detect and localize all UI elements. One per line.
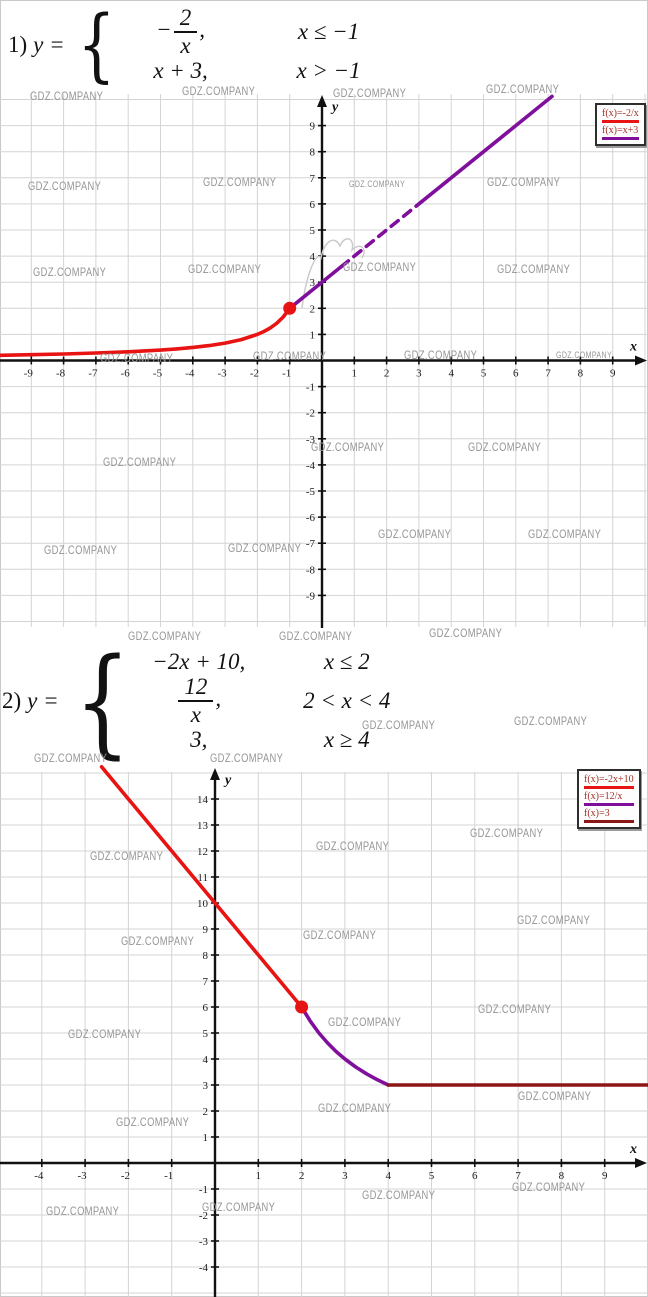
legend-entry: f(x)=3 bbox=[584, 808, 634, 823]
svg-text:8: 8 bbox=[578, 368, 584, 380]
condition-text: 2 < x < 4 bbox=[303, 688, 390, 713]
piecewise-rows: −2x,x ≤ −1x + 3,x > −1 bbox=[122, 6, 404, 84]
svg-text:-1: -1 bbox=[282, 368, 291, 380]
svg-text:3: 3 bbox=[416, 368, 422, 380]
svg-text:1: 1 bbox=[256, 1170, 262, 1182]
svg-text:9: 9 bbox=[310, 121, 316, 133]
svg-text:8: 8 bbox=[310, 147, 316, 159]
svg-text:-2: -2 bbox=[121, 1170, 130, 1182]
piecewise-row: x + 3,x > −1 bbox=[122, 58, 404, 84]
svg-text:-5: -5 bbox=[306, 486, 316, 498]
legend-entry: f(x)=-2/x bbox=[602, 108, 639, 123]
svg-text:2: 2 bbox=[384, 368, 390, 380]
legend-color-bar bbox=[584, 803, 634, 806]
fraction-numerator: 2 bbox=[174, 6, 198, 32]
piecewise-brace: { bbox=[77, 11, 115, 79]
svg-text:-3: -3 bbox=[306, 434, 316, 446]
piecewise-condition: x ≤ 2 bbox=[272, 649, 422, 675]
legend-entry: f(x)=x+3 bbox=[602, 125, 639, 140]
svg-text:5: 5 bbox=[203, 1028, 209, 1040]
svg-text:9: 9 bbox=[610, 368, 616, 380]
curve-f-x-x-3 bbox=[341, 201, 422, 266]
x-axis-arrow bbox=[635, 1158, 647, 1168]
expression-text: −2x + 10, bbox=[152, 649, 245, 674]
fraction: 2x bbox=[174, 6, 198, 58]
svg-text:4: 4 bbox=[203, 1054, 209, 1066]
curve-f-x-2-x bbox=[0, 308, 290, 355]
piecewise-expression: −2x, bbox=[122, 6, 240, 58]
legend-entry: f(x)=12/x bbox=[584, 791, 634, 806]
svg-text:9: 9 bbox=[203, 924, 209, 936]
graph-1-svg: xy-9-8-7-6-5-4-3-2-1123456789-9-8-7-6-5-… bbox=[0, 88, 648, 628]
svg-text:4: 4 bbox=[385, 1170, 391, 1182]
svg-text:2: 2 bbox=[299, 1170, 305, 1182]
piecewise-row: 12x,2 < x < 4 bbox=[140, 675, 422, 727]
svg-text:1: 1 bbox=[203, 1132, 209, 1144]
svg-text:-1: -1 bbox=[199, 1184, 208, 1196]
svg-text:5: 5 bbox=[481, 368, 487, 380]
svg-text:9: 9 bbox=[602, 1170, 608, 1182]
fraction-denominator: x bbox=[180, 33, 190, 58]
solution-page: 1)y ={−2x,x ≤ −1x + 3,x > −1 xy-9-8-7-6-… bbox=[0, 0, 648, 1297]
svg-text:-7: -7 bbox=[306, 538, 316, 550]
svg-text:6: 6 bbox=[472, 1170, 478, 1182]
expression-text: x + 3, bbox=[153, 58, 207, 83]
comma: , bbox=[199, 17, 205, 42]
svg-text:-3: -3 bbox=[78, 1170, 88, 1182]
graph-2-svg: xy-4-3-2-1123456789-4-3-2-11234567891011… bbox=[0, 763, 648, 1297]
svg-text:-4: -4 bbox=[306, 460, 316, 472]
problem-number: 1) bbox=[8, 32, 27, 58]
svg-text:-2: -2 bbox=[250, 368, 259, 380]
grid-lines bbox=[0, 772, 648, 1297]
svg-text:7: 7 bbox=[203, 976, 209, 988]
svg-text:-6: -6 bbox=[306, 512, 316, 524]
svg-text:-2: -2 bbox=[306, 408, 315, 420]
svg-text:-5: -5 bbox=[153, 368, 163, 380]
svg-text:-1: -1 bbox=[306, 382, 315, 394]
piecewise-expression: x + 3, bbox=[122, 58, 240, 84]
problem-number: 2) bbox=[2, 688, 21, 714]
piecewise-brace: { bbox=[74, 651, 130, 751]
fraction-denominator: x bbox=[191, 702, 201, 727]
legend-color-bar bbox=[602, 137, 639, 140]
legend-color-bar bbox=[584, 820, 634, 823]
minus-sign: − bbox=[156, 17, 172, 42]
svg-text:5: 5 bbox=[429, 1170, 435, 1182]
legend-color-bar bbox=[602, 120, 639, 123]
fraction: 12x bbox=[178, 675, 213, 727]
svg-text:10: 10 bbox=[197, 898, 209, 910]
condition-text: x ≤ 2 bbox=[324, 649, 370, 674]
endpoint-dot bbox=[283, 302, 296, 315]
watermark: GDZ.COMPANY bbox=[514, 714, 587, 728]
problem-lhs: y = bbox=[27, 688, 58, 714]
watermark: GDZ.COMPANY bbox=[429, 626, 502, 640]
svg-text:1: 1 bbox=[310, 329, 316, 341]
svg-text:2: 2 bbox=[310, 303, 316, 315]
y-axis-label: y bbox=[223, 773, 232, 788]
legend-entry: f(x)=-2x+10 bbox=[584, 774, 634, 789]
legend-entry-label: f(x)=3 bbox=[584, 808, 634, 819]
svg-text:-4: -4 bbox=[185, 368, 195, 380]
piecewise-rows: −2x + 10,x ≤ 212x,2 < x < 43,x ≥ 4 bbox=[140, 649, 422, 753]
svg-text:13: 13 bbox=[197, 820, 209, 832]
legend-box-2: f(x)=-2x+10f(x)=12/xf(x)=3 bbox=[577, 769, 641, 829]
legend-box-1: f(x)=-2/xf(x)=x+3 bbox=[595, 103, 646, 146]
piecewise-expression: 12x, bbox=[140, 675, 258, 727]
svg-text:5: 5 bbox=[310, 225, 316, 237]
piecewise-expression: 3, bbox=[140, 727, 258, 753]
piecewise-condition: x ≥ 4 bbox=[272, 727, 422, 753]
legend-entry-label: f(x)=-2x+10 bbox=[584, 774, 634, 785]
y-axis-arrow bbox=[210, 768, 220, 780]
piecewise-row: 3,x ≥ 4 bbox=[140, 727, 422, 753]
legend-entry-label: f(x)=-2/x bbox=[602, 108, 639, 119]
condition-text: x ≥ 4 bbox=[324, 727, 370, 752]
problem-2-formula: 2)y ={−2x + 10,x ≤ 212x,2 < x < 43,x ≥ 4 bbox=[2, 640, 422, 762]
piecewise-condition: 2 < x < 4 bbox=[272, 688, 422, 714]
svg-text:14: 14 bbox=[197, 794, 209, 806]
svg-text:-8: -8 bbox=[56, 368, 66, 380]
axes bbox=[0, 777, 639, 1297]
svg-text:3: 3 bbox=[342, 1170, 348, 1182]
svg-text:4: 4 bbox=[448, 368, 454, 380]
svg-text:-4: -4 bbox=[199, 1262, 209, 1274]
fraction-numerator: 12 bbox=[178, 675, 213, 701]
piecewise-row: −2x + 10,x ≤ 2 bbox=[140, 649, 422, 675]
legend-entry-label: f(x)=12/x bbox=[584, 791, 634, 802]
piecewise-row: −2x,x ≤ −1 bbox=[122, 6, 404, 58]
svg-text:-9: -9 bbox=[24, 368, 34, 380]
svg-text:-2: -2 bbox=[199, 1210, 208, 1222]
svg-text:8: 8 bbox=[559, 1170, 565, 1182]
x-axis-label: x bbox=[629, 340, 637, 355]
piecewise-condition: x > −1 bbox=[254, 58, 404, 84]
svg-text:-3: -3 bbox=[218, 368, 228, 380]
comma: , bbox=[215, 686, 221, 711]
expression-text: 3, bbox=[190, 727, 207, 752]
svg-text:-7: -7 bbox=[88, 368, 98, 380]
svg-text:7: 7 bbox=[515, 1170, 521, 1182]
svg-text:-6: -6 bbox=[121, 368, 131, 380]
svg-text:2: 2 bbox=[203, 1106, 209, 1118]
condition-text: x ≤ −1 bbox=[298, 19, 359, 44]
svg-text:6: 6 bbox=[513, 368, 519, 380]
condition-text: x > −1 bbox=[296, 58, 360, 83]
curve-f-x-x-3 bbox=[422, 96, 552, 201]
y-axis-label: y bbox=[330, 100, 339, 115]
svg-text:7: 7 bbox=[545, 368, 551, 380]
problem-lhs: y = bbox=[33, 32, 64, 58]
svg-text:6: 6 bbox=[310, 199, 316, 211]
svg-text:-8: -8 bbox=[306, 564, 316, 576]
svg-text:-4: -4 bbox=[34, 1170, 44, 1182]
legend-color-bar bbox=[584, 786, 634, 789]
svg-text:7: 7 bbox=[310, 173, 316, 185]
curve-f-x-x-3 bbox=[290, 267, 342, 309]
piecewise-condition: x ≤ −1 bbox=[254, 19, 404, 45]
piecewise-expression: −2x + 10, bbox=[140, 649, 258, 675]
problem-1-formula: 1)y ={−2x,x ≤ −1x + 3,x > −1 bbox=[8, 2, 404, 88]
endpoint-dot bbox=[295, 1001, 308, 1014]
svg-text:-3: -3 bbox=[199, 1236, 209, 1248]
legend-entry-label: f(x)=x+3 bbox=[602, 125, 639, 136]
svg-text:6: 6 bbox=[203, 1002, 209, 1014]
y-axis-arrow bbox=[317, 95, 327, 107]
svg-text:1: 1 bbox=[352, 368, 358, 380]
svg-text:12: 12 bbox=[197, 846, 208, 858]
svg-text:-1: -1 bbox=[164, 1170, 173, 1182]
svg-text:3: 3 bbox=[203, 1080, 209, 1092]
svg-text:-9: -9 bbox=[306, 590, 316, 602]
x-axis-label: x bbox=[629, 1142, 637, 1157]
svg-text:8: 8 bbox=[203, 950, 209, 962]
